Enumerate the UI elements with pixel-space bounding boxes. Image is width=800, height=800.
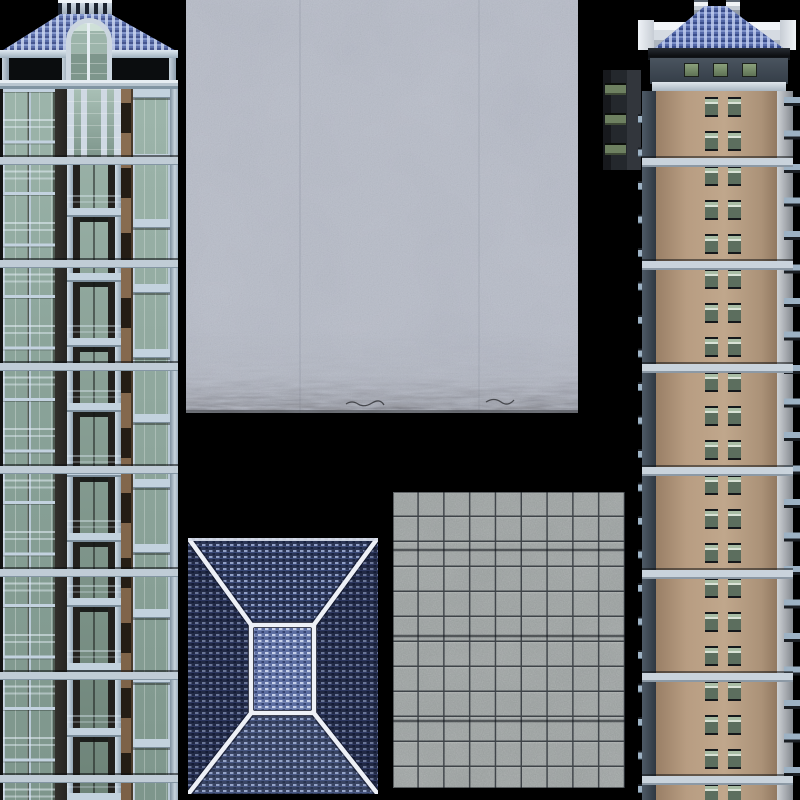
stucco-wall-texture xyxy=(186,0,578,413)
loggia-post xyxy=(2,58,9,82)
attic-ledge xyxy=(652,82,786,91)
left-tower-arched-atrium-window xyxy=(66,18,112,84)
loggia-post xyxy=(169,58,176,82)
attic-window xyxy=(742,63,757,77)
attic-window xyxy=(684,63,699,77)
floor-ledges-overlay xyxy=(642,91,793,800)
grime-fringe xyxy=(186,330,578,413)
attic-band xyxy=(650,58,788,84)
attic-window xyxy=(713,63,728,77)
texture-atlas-canvas xyxy=(0,0,800,800)
left-tower-facade-body xyxy=(0,89,178,800)
roof-deck xyxy=(251,625,314,713)
right-tower-facade-body xyxy=(638,91,800,800)
left-tower-cornice xyxy=(0,80,178,89)
left-tower-crown-balustrade xyxy=(58,0,112,16)
parapet-corner-block-right xyxy=(780,20,796,50)
tile-grid-lines xyxy=(393,492,625,788)
left-tower-texture xyxy=(0,0,180,800)
hip-roof-top-texture xyxy=(188,538,378,794)
right-tower-texture xyxy=(638,0,800,800)
parapet-corner-block-left xyxy=(638,20,654,50)
louver-panel-texture xyxy=(603,70,641,170)
louver-window-slits xyxy=(605,70,626,170)
paving-tile-texture xyxy=(393,492,625,788)
floor-ledges-overlay xyxy=(0,89,178,800)
